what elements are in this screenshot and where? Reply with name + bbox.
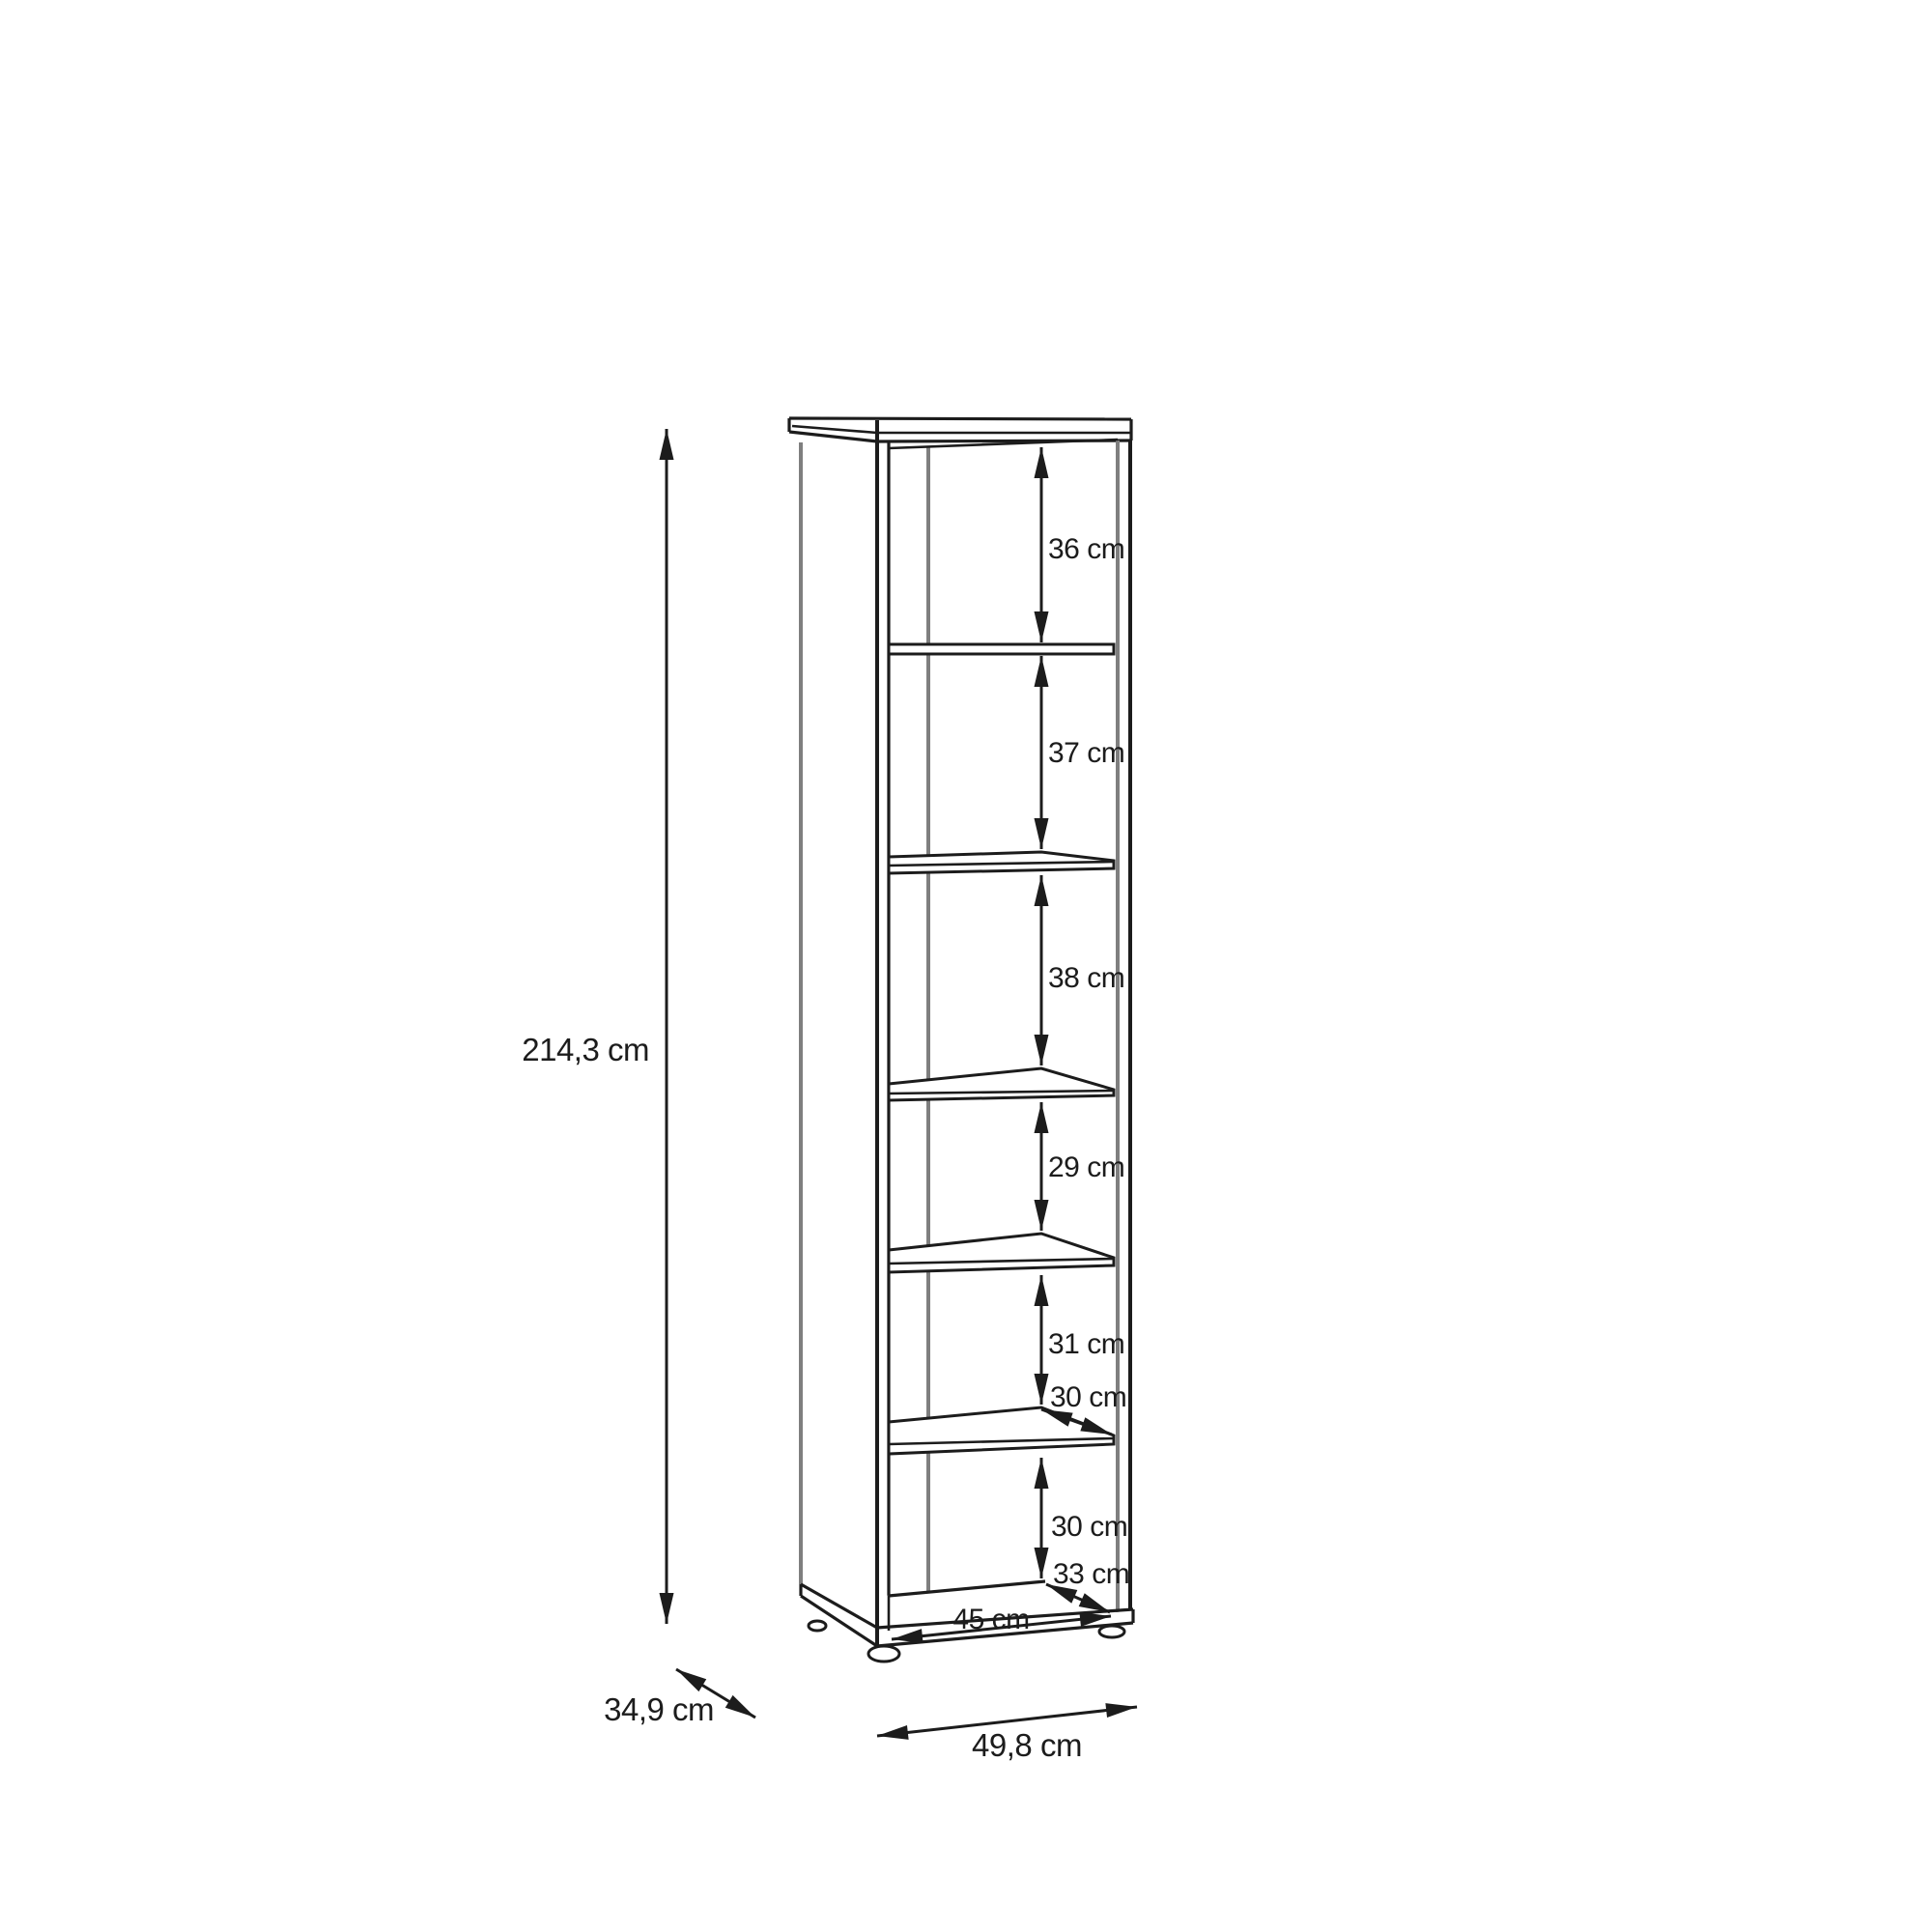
shelf-3-board [889, 1068, 1114, 1100]
foot-right [1099, 1626, 1124, 1637]
foot-front-left [868, 1646, 899, 1662]
shelf-5-board [889, 1407, 1114, 1454]
cabinet-dimension-diagram: 214,3 cm 36 cm 37 cm 38 cm 29 cm 31 cm 3… [0, 0, 1932, 1932]
overall-depth-label: 34,9 cm [604, 1691, 714, 1727]
shelf-1 [889, 644, 1114, 654]
shelf-depth-label: 30 cm [1050, 1381, 1126, 1413]
compartment-5-label: 31 cm [1048, 1328, 1124, 1360]
top-panel [789, 418, 1131, 441]
shelf-4-board [889, 1234, 1114, 1272]
dimension-diagram-page: 214,3 cm 36 cm 37 cm 38 cm 29 cm 31 cm 3… [0, 0, 1932, 1932]
foot-back-left [809, 1621, 826, 1631]
top-panel-left-bottom-diagonal [789, 432, 877, 441]
shelf-3 [889, 1068, 1114, 1100]
interior-width-label: 45 cm [952, 1604, 1029, 1635]
shelf-1-board [889, 644, 1114, 654]
shelf-2 [889, 852, 1114, 873]
compartment-3-label: 38 cm [1048, 962, 1124, 994]
top-panel-front-corner-diagonal [792, 426, 877, 433]
height-dimension-label: 214,3 cm [522, 1032, 649, 1067]
compartment-6-label: 30 cm [1051, 1511, 1127, 1543]
shelf-4 [889, 1234, 1114, 1272]
base-depth-label: 33 cm [1053, 1558, 1129, 1590]
top-panel-top-edge [789, 418, 1131, 419]
compartment-2-label: 37 cm [1048, 737, 1124, 769]
compartment-1-label: 36 cm [1048, 533, 1124, 565]
overall-width-label: 49,8 cm [972, 1727, 1082, 1763]
cabinet-drawing [789, 418, 1133, 1662]
shelf-5 [889, 1407, 1114, 1454]
compartment-4-label: 29 cm [1048, 1151, 1124, 1183]
